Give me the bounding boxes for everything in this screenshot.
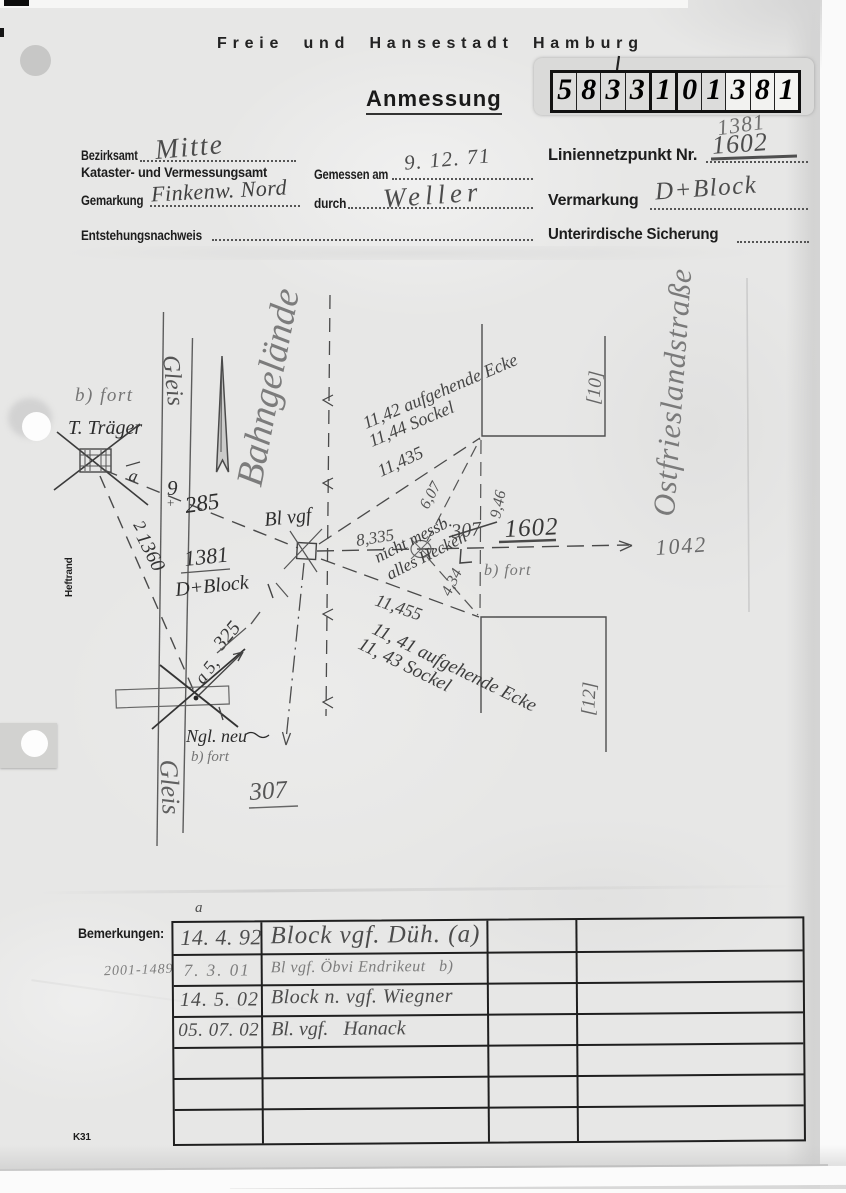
svg-text:Bl vgf: Bl vgf [263, 504, 315, 531]
svg-text:325: 325 [208, 617, 245, 655]
svg-text:285: 285 [183, 488, 221, 518]
svg-text:307: 307 [248, 776, 290, 806]
svg-text:b) fort: b) fort [484, 562, 531, 579]
svg-text:[10]: [10] [583, 370, 607, 405]
svg-text:b) fort: b) fort [75, 385, 134, 406]
svg-text:Ngl. neu: Ngl. neu [185, 726, 247, 746]
svg-text:11,435: 11,435 [374, 442, 426, 480]
svg-text:a: a [127, 465, 140, 485]
svg-text:[12]: [12] [578, 681, 601, 716]
svg-text:Ostfrieslandstraße: Ostfrieslandstraße [646, 267, 698, 518]
svg-text:1360: 1360 [132, 529, 170, 575]
svg-text:1602: 1602 [504, 513, 559, 543]
svg-text:4,34: 4,34 [438, 566, 466, 599]
svg-text:Bahngelände: Bahngelände [229, 285, 309, 490]
svg-text:D+Block: D+Block [173, 571, 250, 601]
svg-text:Gleis: Gleis [157, 354, 188, 407]
svg-text:+: + [167, 495, 174, 510]
svg-text:6,07: 6,07 [417, 478, 446, 512]
svg-text:1381: 1381 [183, 542, 229, 571]
svg-text:a 5,: a 5, [190, 654, 222, 688]
svg-text:T. Träger: T. Träger [68, 417, 142, 439]
svg-text:1042: 1042 [655, 531, 709, 560]
svg-text:b) fort: b) fort [191, 749, 230, 765]
svg-text:Gleis: Gleis [154, 759, 186, 815]
svg-text:307: 307 [449, 518, 483, 543]
